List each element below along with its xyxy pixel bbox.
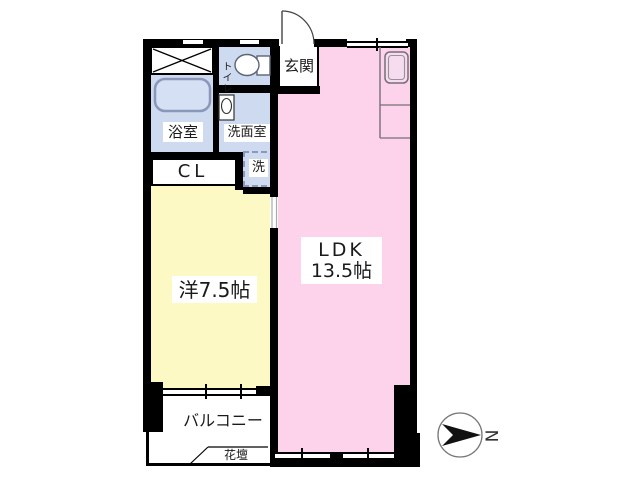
room-label-flowerbed: 花壇 [218, 449, 254, 463]
room-label-toilet: トイレ [219, 48, 232, 106]
floorplan: 浴室 トイレ 玄関 洗面室 洗 CL 洋7.5帖 LDK 13.5帖 バルコニー… [0, 0, 640, 480]
compass-arrow-icon [442, 424, 481, 446]
room-label-balcony: バルコニー [182, 411, 264, 431]
ldk-name: LDK [318, 240, 365, 261]
room-label-bathroom: 浴室 [163, 122, 203, 142]
entrance-door-arc-icon [282, 11, 314, 44]
flowerbed-diagonal [190, 447, 208, 464]
toilet-bowl-icon [235, 55, 259, 76]
room-label-western: 洋7.5帖 [172, 276, 257, 303]
bathtub-icon [155, 79, 210, 111]
room-label-closet: CL [166, 160, 220, 184]
room-label-laundry: 洗 [249, 159, 268, 177]
room-label-ldk: LDK 13.5帖 [301, 237, 382, 284]
ldk-size: 13.5帖 [311, 261, 372, 282]
compass-north-letter: N [480, 430, 500, 443]
room-label-washroom: 洗面室 [224, 124, 270, 142]
room-label-entrance: 玄関 [281, 56, 317, 76]
